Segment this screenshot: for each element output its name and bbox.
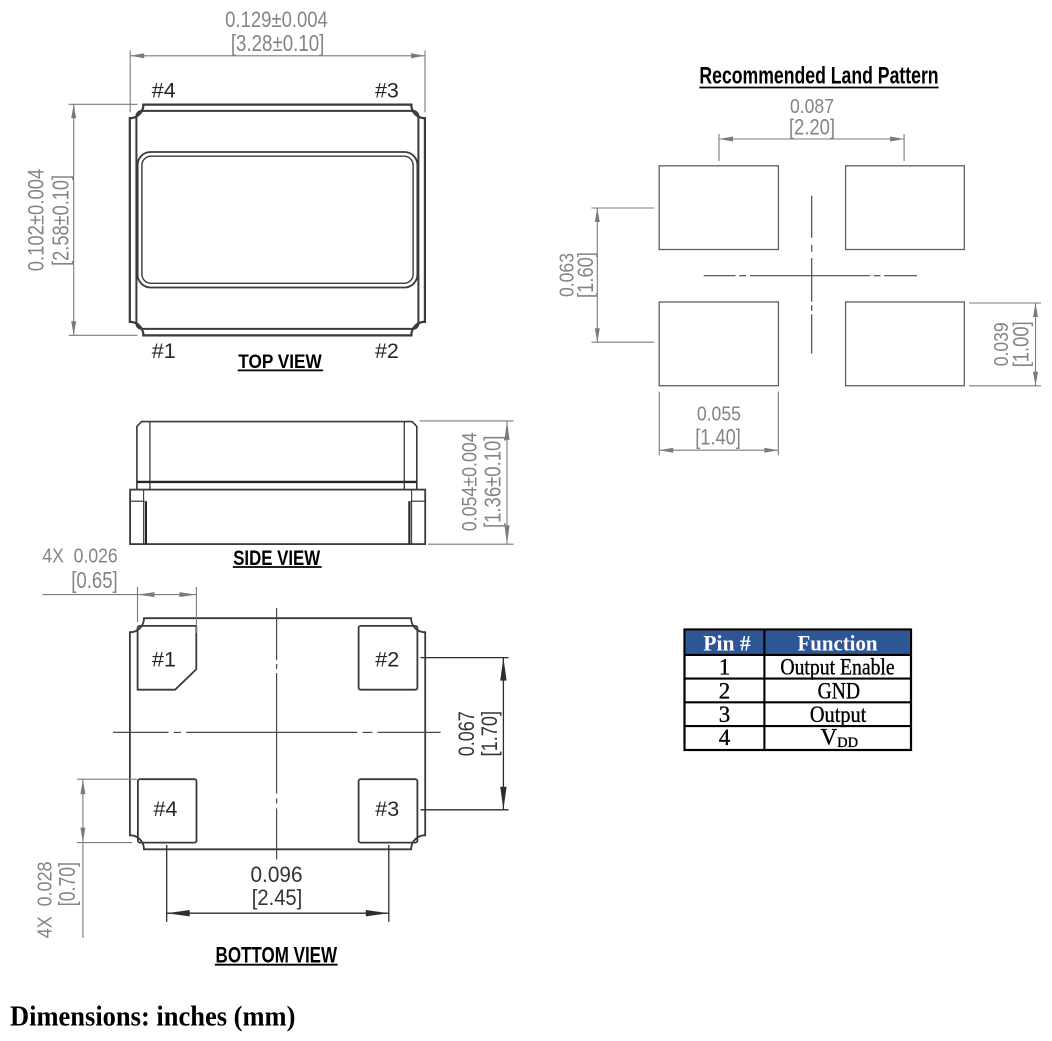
svg-text:[1.40]: [1.40] [695,424,741,449]
svg-text:4X 0.026: 4X 0.026 [42,546,117,568]
svg-text:GND: GND [818,678,860,703]
svg-text:Output: Output [810,702,867,727]
svg-text:0.055: 0.055 [697,403,741,425]
svg-text:1: 1 [719,655,731,680]
svg-text:[1.60]: [1.60] [573,252,598,298]
svg-text:[2.20]: [2.20] [789,115,835,140]
svg-text:[2.58±0.10]: [2.58±0.10] [48,175,74,266]
svg-text:#1: #1 [152,648,176,672]
svg-text:#2: #2 [375,339,399,363]
svg-text:#4: #4 [152,79,176,103]
svg-text:2: 2 [719,678,731,703]
svg-text:#3: #3 [375,79,399,103]
svg-text:#1: #1 [152,339,176,363]
svg-text:0.129±0.004: 0.129±0.004 [225,7,328,32]
svg-text:Pin #: Pin # [703,631,751,656]
svg-text:Function: Function [798,631,878,656]
svg-text:[3.28±0.10]: [3.28±0.10] [231,30,325,56]
svg-text:[2.45]: [2.45] [252,885,303,910]
svg-text:Output Enable: Output Enable [780,655,894,680]
svg-text:#4: #4 [154,797,178,821]
svg-text:3: 3 [719,702,731,727]
svg-text:Recommended Land Pattern: Recommended Land Pattern [699,62,938,89]
svg-text:[0.65]: [0.65] [71,567,118,593]
svg-text:[1.70]: [1.70] [477,711,502,757]
svg-text:[1.36±0.10]: [1.36±0.10] [480,436,506,529]
svg-text:Dimensions: inches (mm): Dimensions: inches (mm) [10,1001,295,1033]
svg-text:#2: #2 [375,648,399,672]
svg-text:0.067: 0.067 [454,711,479,756]
svg-text:[0.70]: [0.70] [54,862,80,906]
svg-text:0.102±0.004: 0.102±0.004 [24,169,49,272]
svg-text:0.054±0.004: 0.054±0.004 [459,432,482,531]
svg-text:[1.00]: [1.00] [1009,321,1034,367]
svg-text:4: 4 [719,725,731,750]
svg-text:0.096: 0.096 [251,862,303,887]
svg-text:#3: #3 [375,797,399,821]
